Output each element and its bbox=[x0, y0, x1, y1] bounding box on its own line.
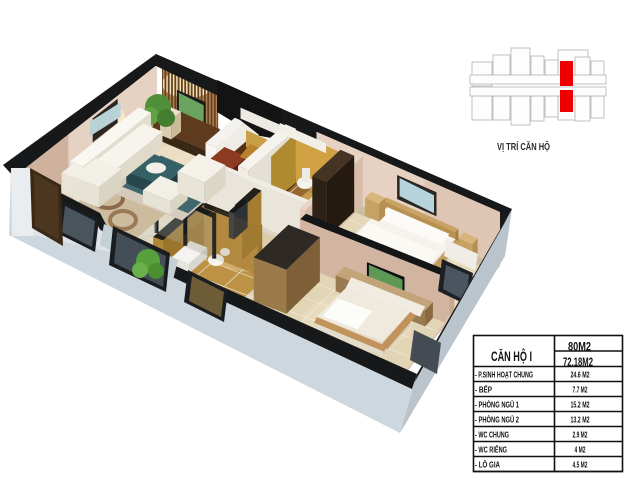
svg-text:4.5 M2: 4.5 M2 bbox=[573, 460, 588, 469]
svg-text:13.2 M2: 13.2 M2 bbox=[571, 415, 590, 424]
svg-text:2.9 M2: 2.9 M2 bbox=[573, 430, 588, 439]
svg-text:- PHÒNG NGỦ 1: - PHÒNG NGỦ 1 bbox=[475, 400, 519, 409]
svg-text:4 M2: 4 M2 bbox=[575, 445, 586, 454]
svg-text:- PHÒNG NGỦ 2: - PHÒNG NGỦ 2 bbox=[475, 415, 519, 424]
svg-text:- LÔ GIA: - LÔ GIA bbox=[475, 460, 500, 469]
svg-text:15.2 M2: 15.2 M2 bbox=[571, 400, 590, 409]
svg-text:- P.SINH HOẠT CHUNG: - P.SINH HOẠT CHUNG bbox=[475, 370, 533, 379]
svg-text:7.7 M2: 7.7 M2 bbox=[573, 385, 588, 394]
svg-text:80M2: 80M2 bbox=[568, 342, 591, 354]
svg-text:24.6 M2: 24.6 M2 bbox=[571, 370, 590, 379]
svg-text:- WC RIÊNG: - WC RIÊNG bbox=[475, 445, 507, 454]
svg-text:- BẾP: - BẾP bbox=[475, 384, 493, 394]
svg-text:CĂN HỘ I: CĂN HỘ I bbox=[491, 349, 532, 364]
svg-text:- WC CHUNG: - WC CHUNG bbox=[475, 430, 509, 439]
svg-text:VỊ TRÍ CĂN HỘ: VỊ TRÍ CĂN HỘ bbox=[497, 140, 550, 153]
svg-text:72.18M2: 72.18M2 bbox=[563, 357, 593, 369]
